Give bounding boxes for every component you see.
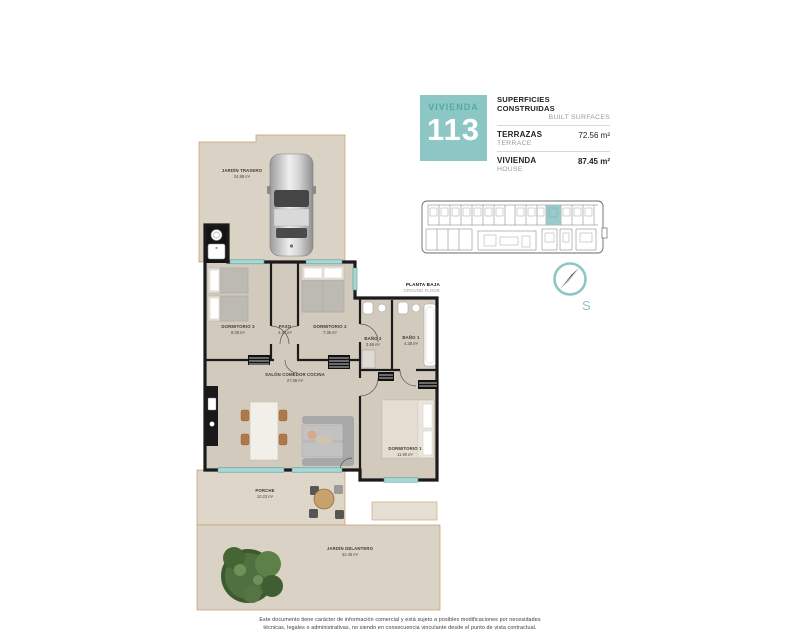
floor-plan: JARDÍN TRASERO 24.88 m² DORMITORIO 3 8.0… — [190, 128, 470, 613]
window — [384, 478, 418, 482]
room-area-porche: 10.23 m² — [257, 494, 274, 499]
terrazas-label-es: TERRAZAS — [497, 130, 542, 139]
disclaimer-line1: Este documento tiene carácter de informa… — [120, 616, 680, 624]
bedroom2-bed — [302, 266, 344, 312]
room-area-dormitorio2: 7.36 m² — [323, 330, 338, 335]
surfaces-table: SUPERFICIES CONSTRUIDAS BUILT SURFACES T… — [497, 95, 610, 173]
surface-row-vivienda: VIVIENDA HOUSE 87.45 m² — [497, 156, 610, 173]
vivienda-value: 87.45 m² — [578, 157, 610, 166]
surfaces-title-es: SUPERFICIES CONSTRUIDAS — [497, 95, 610, 113]
compass-south-label: S — [582, 298, 591, 313]
sliding-door — [292, 468, 342, 472]
terrazas-value: 72.56 m² — [578, 131, 610, 140]
room-area-paso: 4.44 m² — [278, 330, 293, 335]
room-area-salon: 27.08 m² — [287, 378, 304, 383]
room-name-paso: PASO — [279, 324, 292, 329]
legal-disclaimer: Este documento tiene carácter de informa… — [120, 616, 680, 632]
room-area-jardin-delantero: 32.46 m² — [342, 552, 359, 557]
sliding-door — [218, 468, 284, 472]
sofa — [302, 416, 354, 466]
side-terrace-slab — [372, 502, 437, 520]
window — [306, 260, 342, 264]
room-name-dormitorio3: DORMITORIO 3 — [221, 324, 255, 329]
room-area-bano1: 4.38 m² — [404, 341, 419, 346]
utility-area — [204, 224, 229, 263]
window — [353, 268, 357, 290]
room-name-porche: PORCHE — [255, 488, 274, 493]
room-name-jardin-delantero: JARDÍN DELANTERO — [327, 546, 374, 551]
compass: S — [546, 254, 596, 316]
room-name-dormitorio1: DORMITORIO 1 — [388, 446, 422, 451]
room-name-salon: SALÓN COMEDOR COCINA — [265, 372, 325, 377]
room-name-bano1: BAÑO 1 — [402, 335, 420, 340]
floor-label-es: PLANTA BAJA — [406, 282, 441, 287]
room-name-jardin-trasero: JARDÍN TRASERO — [222, 168, 263, 173]
compass-icon: S — [546, 254, 596, 316]
room-area-bano2: 3.55 m² — [366, 342, 381, 347]
kitchen-counter — [206, 386, 218, 446]
surfaces-title-en: BUILT SURFACES — [497, 114, 610, 121]
floor-label-en: GROUND FLOOR — [403, 288, 440, 293]
surface-row-terrazas: TERRAZAS TERRACE 72.56 m² — [497, 130, 610, 147]
divider — [497, 151, 610, 152]
tree-illustration — [221, 547, 283, 603]
window — [230, 260, 264, 264]
terrazas-label-en: TERRACE — [497, 140, 542, 147]
vivienda-label-es: VIVIENDA — [497, 156, 536, 165]
room-area-dormitorio3: 8.08 m² — [231, 330, 246, 335]
room-area-dormitorio1: 11.90 m² — [397, 452, 413, 457]
disclaimer-line2: técnicas, legales o administrativas, no … — [120, 624, 680, 632]
divider — [497, 125, 610, 126]
vivienda-label-en: HOUSE — [497, 166, 536, 173]
room-name-dormitorio2: DORMITORIO 2 — [313, 324, 347, 329]
person-figure — [308, 431, 317, 440]
room-name-bano2: BAÑO 2 — [364, 336, 382, 341]
floor-plan-drawing: JARDÍN TRASERO 24.88 m² DORMITORIO 3 8.0… — [190, 128, 470, 613]
room-area-jardin-trasero: 24.88 m² — [234, 174, 251, 179]
page: VIVIENDA 113 SUPERFICIES CONSTRUIDAS BUI… — [0, 0, 800, 640]
unit-label: VIVIENDA — [428, 102, 479, 112]
car-illustration — [267, 154, 316, 256]
